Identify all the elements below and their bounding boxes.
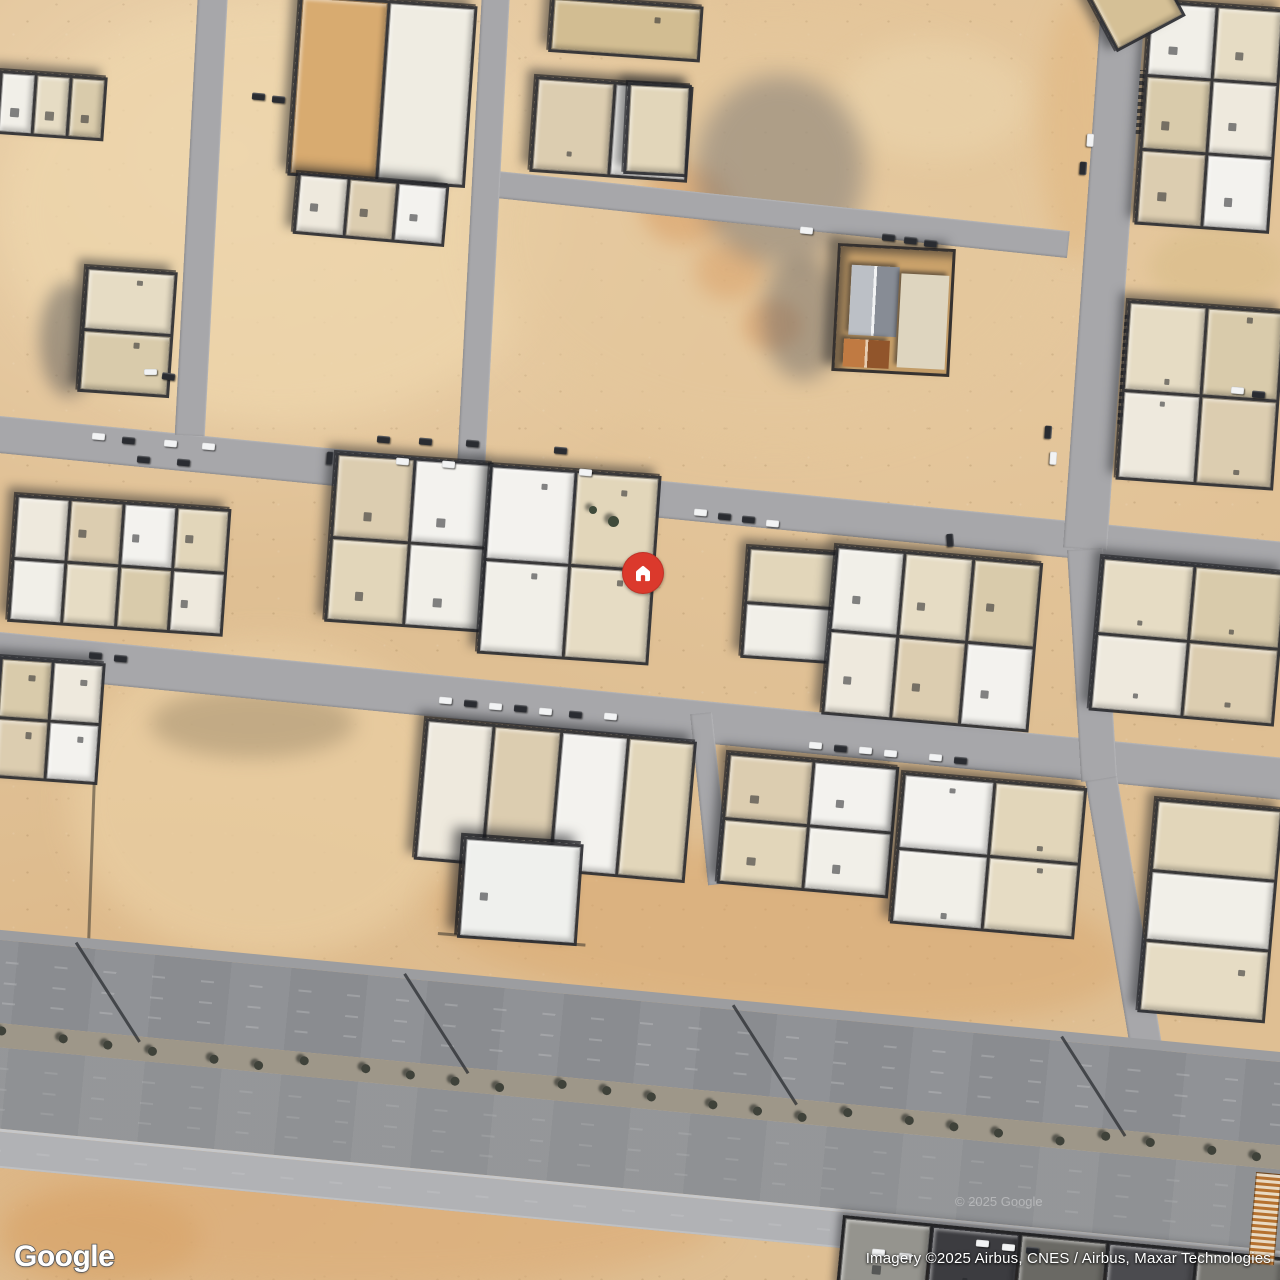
building-roof: [410, 461, 490, 547]
parked-car: [578, 468, 592, 476]
building-roof: [900, 554, 972, 640]
parked-car: [946, 533, 954, 547]
building-block: [890, 772, 1088, 940]
building-roof: [1147, 872, 1274, 950]
building-roof: [804, 827, 891, 895]
rooftop-structure: [309, 203, 318, 212]
home-icon: [631, 561, 655, 585]
rooftop-structure: [986, 604, 995, 613]
parked-car: [438, 696, 452, 704]
rooftop-structure: [917, 602, 926, 611]
parked-car: [808, 741, 822, 749]
gable-orange-roof: [843, 338, 890, 368]
parked-car: [603, 712, 617, 720]
building-roof: [747, 549, 836, 606]
sand-patch: [1150, 228, 1280, 306]
building-block: [293, 172, 450, 247]
building-roof: [117, 567, 171, 630]
rooftop-structure: [136, 280, 142, 286]
building-roof: [85, 269, 175, 333]
building-roof: [34, 76, 70, 136]
parked-car: [953, 756, 967, 764]
rooftop-structure: [363, 512, 372, 521]
building-shadow: [695, 75, 865, 265]
building-block: [548, 0, 704, 62]
parked-car: [923, 239, 937, 247]
building-roof: [1125, 303, 1205, 393]
building-roof: [1203, 155, 1271, 230]
rooftop-structure: [359, 209, 367, 217]
parked-car: [883, 749, 897, 757]
building-block: [1088, 556, 1280, 727]
satellite-map-canvas[interactable]: © 2025 Google Google Imagery ©2025 Airbu…: [0, 0, 1280, 1280]
building-block: [1134, 0, 1280, 234]
rooftop-structure: [1137, 621, 1143, 627]
building-roof: [68, 501, 122, 564]
parked-car: [463, 699, 477, 707]
building-roof: [46, 722, 98, 782]
building-roof: [720, 820, 807, 888]
rooftop-structure: [1157, 192, 1166, 201]
rooftop-structure: [1161, 122, 1170, 131]
building-roof: [1190, 567, 1280, 647]
rooftop-structure: [750, 795, 759, 804]
rooftop-structure: [980, 690, 989, 699]
building-roof: [1092, 635, 1187, 715]
rooftop-structure: [1247, 317, 1253, 323]
building-roof: [626, 85, 688, 174]
rooftop-structure: [746, 857, 755, 866]
building-roof: [899, 775, 993, 854]
parked-car: [1086, 133, 1093, 146]
rooftop-structure: [1037, 846, 1043, 852]
rooftop-structure: [45, 111, 54, 120]
parked-car: [88, 651, 102, 659]
rooftop-structure: [835, 799, 844, 808]
villa-compound: [831, 243, 956, 377]
rooftop-structure: [436, 518, 445, 527]
rooftop-structure: [1229, 629, 1235, 635]
building-roof: [533, 79, 614, 174]
parked-car: [1230, 386, 1244, 394]
parked-car: [928, 753, 942, 761]
building-roof: [968, 560, 1040, 646]
rooftop-structure: [186, 535, 194, 543]
building-roof: [824, 631, 896, 717]
flat-roof: [897, 273, 950, 369]
parked-car: [513, 704, 527, 712]
rooftop-structure: [566, 151, 572, 157]
parked-car: [538, 707, 552, 715]
building-roof: [174, 508, 228, 571]
parked-car: [163, 439, 177, 447]
parked-car: [91, 432, 105, 440]
building-roof: [121, 505, 175, 568]
building-block: [457, 836, 584, 946]
building-roof: [893, 637, 965, 723]
rooftop-structure: [80, 114, 89, 123]
parked-car: [201, 442, 215, 450]
parked-car: [144, 369, 157, 376]
building-roof: [961, 643, 1033, 729]
building-block: [740, 546, 840, 664]
parked-car: [251, 92, 265, 100]
building-roof: [1098, 559, 1193, 639]
parked-car: [121, 436, 135, 444]
parked-car: [568, 710, 582, 718]
rooftop-structure: [621, 491, 627, 497]
parked-car: [741, 515, 755, 523]
rooftop-structure: [1168, 46, 1177, 55]
parked-car: [833, 744, 847, 752]
building-roof: [990, 783, 1084, 862]
rooftop-structure: [409, 213, 418, 222]
parked-car: [1251, 390, 1265, 398]
parked-car: [113, 654, 127, 662]
parked-car: [717, 512, 731, 520]
building-roof: [1209, 82, 1277, 157]
rooftop-structure: [180, 600, 188, 608]
building-roof: [63, 563, 117, 626]
building-block: [1137, 798, 1280, 1023]
parked-car: [903, 236, 917, 244]
rooftop-structure: [1228, 122, 1237, 131]
building-roof: [333, 455, 413, 541]
rooftop-structure: [1235, 52, 1244, 61]
building-roof: [378, 3, 475, 184]
building-roof: [327, 538, 407, 624]
parked-car: [176, 458, 190, 466]
parked-car: [858, 746, 872, 754]
map-features-layer: [0, 0, 1280, 1280]
rooftop-structure: [1233, 469, 1239, 475]
parked-car: [271, 95, 285, 103]
rooftop-structure: [25, 732, 32, 739]
building-roof: [69, 78, 105, 138]
building-block: [716, 752, 899, 898]
building-roof: [1143, 77, 1211, 152]
rooftop-structure: [480, 892, 488, 900]
parked-car: [799, 226, 813, 234]
parked-car: [975, 1239, 989, 1247]
building-roof: [0, 719, 47, 779]
building-roof: [1214, 8, 1280, 83]
building-roof: [486, 467, 574, 563]
sand-patch: [840, 40, 1030, 160]
rooftop-structure: [912, 683, 921, 692]
rooftop-structure: [654, 17, 661, 24]
rooftop-structure: [80, 679, 87, 686]
parked-car: [881, 233, 895, 241]
building-roof: [743, 604, 832, 661]
building-roof: [1183, 643, 1278, 723]
rooftop-structure: [1238, 969, 1245, 976]
building-roof: [291, 0, 388, 179]
building-roof: [80, 331, 170, 395]
rooftop-structure: [541, 484, 547, 490]
google-logo[interactable]: Google: [14, 1240, 114, 1274]
building-roof: [984, 857, 1078, 936]
building-block: [623, 82, 692, 177]
parked-car: [395, 457, 409, 465]
building-roof: [810, 763, 897, 831]
rooftop-structure: [1225, 702, 1231, 708]
rooftop-structure: [133, 342, 139, 348]
building-roof: [725, 755, 812, 823]
rooftop-structure: [29, 675, 36, 682]
building-block: [0, 70, 108, 141]
rooftop-structure: [831, 865, 840, 874]
building-block: [0, 656, 106, 785]
parked-car: [553, 446, 567, 454]
building-roof: [10, 560, 64, 623]
building-roof: [405, 544, 485, 630]
parked-car: [1044, 425, 1051, 438]
rooftop-structure: [843, 676, 852, 685]
building-roof: [345, 180, 396, 240]
parked-car: [376, 435, 390, 443]
building-roof: [618, 739, 694, 880]
building-roof: [832, 548, 904, 634]
building-roof: [1138, 151, 1206, 226]
building-roof: [0, 73, 35, 133]
building-roof: [296, 175, 347, 235]
rooftop-structure: [940, 913, 946, 919]
rooftop-structure: [10, 108, 19, 117]
rooftop-structure: [1224, 198, 1233, 207]
rooftop-structure: [1159, 401, 1165, 407]
rooftop-structure: [1164, 379, 1170, 385]
building-roof: [460, 839, 580, 943]
rooftop-structure: [1037, 868, 1043, 874]
parked-car: [161, 372, 175, 380]
building-block: [821, 545, 1043, 732]
rooftop-structure: [949, 788, 955, 794]
parked-car: [765, 519, 779, 527]
building-roof: [0, 659, 51, 719]
rooftop-structure: [432, 598, 441, 607]
home-location-marker[interactable]: [622, 552, 664, 594]
building-roof: [893, 849, 987, 928]
parked-car: [136, 455, 150, 463]
building-roof: [15, 497, 69, 560]
building-roof: [480, 560, 568, 656]
parked-car: [326, 451, 334, 465]
parked-car: [418, 437, 432, 445]
parked-car: [441, 460, 455, 468]
building-roof: [551, 0, 700, 59]
google-center-watermark: © 2025 Google: [955, 1194, 1043, 1209]
rooftop-structure: [354, 592, 363, 601]
building-roof: [1202, 309, 1280, 399]
tree: [589, 506, 597, 514]
building-roof: [50, 663, 102, 723]
rooftop-structure: [531, 573, 537, 579]
building-roof: [1153, 801, 1280, 879]
building-block: [287, 0, 477, 188]
building-roof: [395, 184, 446, 244]
building-roof: [170, 571, 224, 634]
rooftop-structure: [616, 580, 622, 586]
building-block: [324, 452, 493, 633]
parked-car: [1079, 161, 1086, 174]
building-roof: [1141, 942, 1268, 1020]
tree: [608, 516, 619, 527]
rooftop-structure: [78, 530, 86, 538]
rooftop-structure: [1132, 693, 1138, 699]
building-roof: [1119, 391, 1199, 481]
parked-car: [693, 508, 707, 516]
imagery-attribution: Imagery ©2025 Airbus, CNES / Airbus, Max…: [866, 1250, 1271, 1267]
rooftop-structure: [852, 595, 861, 604]
rooftop-structure: [77, 737, 84, 744]
rooftop-structure: [132, 534, 140, 542]
building-block: [7, 494, 231, 637]
gable-gray-roof: [848, 265, 900, 337]
parked-car: [1049, 451, 1056, 464]
parked-car: [488, 702, 502, 710]
parked-car: [465, 439, 479, 447]
building-roof: [1196, 397, 1276, 487]
